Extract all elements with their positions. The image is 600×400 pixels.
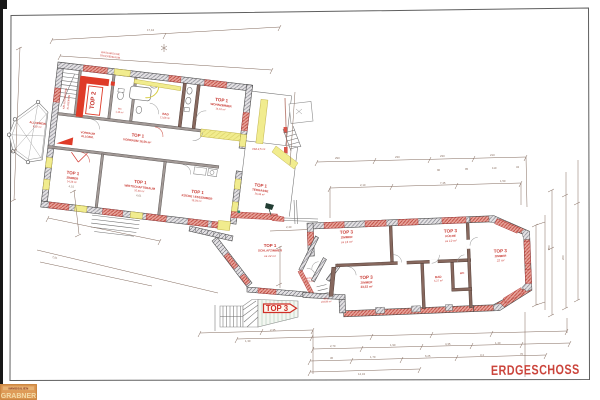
svg-text:3,4: 3,4: [480, 353, 484, 357]
svg-text:BAD: BAD: [435, 275, 442, 279]
svg-text:GRABNER: GRABNER: [1, 393, 36, 400]
svg-text:2,10: 2,10: [360, 183, 366, 187]
svg-text:1,50: 1,50: [500, 179, 506, 183]
svg-text:260: 260: [561, 255, 565, 260]
svg-text:2,40: 2,40: [286, 225, 292, 229]
svg-text:3,73 m²: 3,73 m²: [305, 280, 313, 283]
svg-text:4,35: 4,35: [445, 342, 451, 346]
svg-text:1,30: 1,30: [245, 339, 251, 343]
svg-text:36: 36: [330, 356, 334, 360]
svg-text:IMMOBILIEN: IMMOBILIEN: [9, 387, 29, 391]
svg-text:7,45: 7,45: [440, 181, 446, 185]
svg-text:34: 34: [516, 165, 520, 169]
svg-text:230: 230: [395, 155, 400, 159]
svg-text:103,89 m²: 103,89 m²: [321, 300, 332, 303]
svg-text:230: 230: [440, 154, 445, 158]
svg-text:ca 12 m²: ca 12 m²: [264, 254, 277, 258]
svg-text:ca 12 m²: ca 12 m²: [445, 239, 458, 244]
svg-text:ERDGESCHOSS: ERDGESCHOSS: [491, 362, 580, 379]
svg-text:5,27 m²: 5,27 m²: [434, 278, 443, 282]
svg-text:TOP 3: TOP 3: [266, 304, 289, 313]
svg-text:1,70: 1,70: [370, 355, 376, 359]
svg-text:1,40: 1,40: [495, 341, 501, 345]
svg-text:2,35: 2,35: [270, 328, 276, 332]
svg-text:KÜCHE: KÜCHE: [445, 233, 456, 238]
svg-text:210: 210: [490, 153, 495, 157]
svg-text:2,70: 2,70: [330, 344, 336, 348]
svg-text:22 m²: 22 m²: [496, 258, 506, 262]
svg-text:110: 110: [492, 166, 497, 170]
svg-text:ca 14 m²: ca 14 m²: [341, 240, 354, 245]
svg-text:17,44: 17,44: [147, 28, 154, 32]
svg-text:290: 290: [335, 156, 340, 160]
svg-text:6,25: 6,25: [425, 354, 431, 358]
svg-text:VDA 2,5 m²: VDA 2,5 m²: [252, 147, 265, 151]
svg-text:70: 70: [520, 352, 524, 356]
svg-text:4,15: 4,15: [68, 184, 74, 189]
svg-text:ZIMMER: ZIMMER: [341, 235, 354, 240]
svg-text:WC: WC: [460, 271, 465, 275]
svg-text:14,34: 14,34: [358, 372, 365, 376]
svg-text:23,52 m²: 23,52 m²: [361, 284, 373, 288]
svg-text:95: 95: [465, 167, 469, 171]
svg-text:4,61: 4,61: [136, 193, 142, 198]
svg-text:TOP 1: TOP 1: [264, 243, 277, 248]
svg-text:850: 850: [547, 245, 551, 250]
svg-text:SCHLAFZIMMER: SCHLAFZIMMER: [258, 249, 283, 253]
svg-text:90: 90: [437, 168, 441, 172]
svg-text:1,90: 1,90: [390, 343, 396, 347]
